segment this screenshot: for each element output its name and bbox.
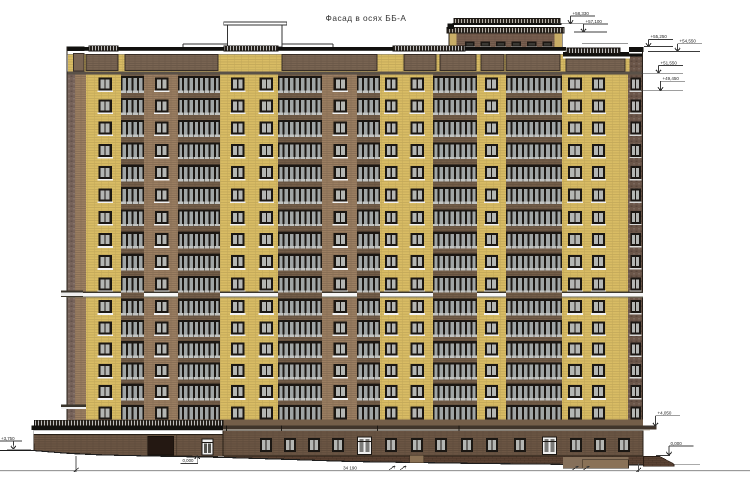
- svg-text:+3,750: +3,750: [1, 436, 15, 441]
- svg-text:0,000: 0,000: [671, 441, 683, 446]
- svg-text:+51,550: +51,550: [661, 60, 678, 65]
- svg-text:Фасад в осях ББ-А: Фасад в осях ББ-А: [326, 13, 407, 23]
- svg-text:+57,100: +57,100: [586, 19, 603, 24]
- svg-text:+58,330: +58,330: [573, 11, 590, 16]
- svg-text:+49,450: +49,450: [663, 76, 680, 81]
- svg-text:0,000: 0,000: [183, 458, 195, 463]
- svg-text:34 190: 34 190: [343, 465, 357, 470]
- svg-text:+55,250: +55,250: [651, 34, 668, 39]
- svg-text:+4,050: +4,050: [658, 411, 672, 416]
- svg-text:+54,550: +54,550: [680, 39, 697, 44]
